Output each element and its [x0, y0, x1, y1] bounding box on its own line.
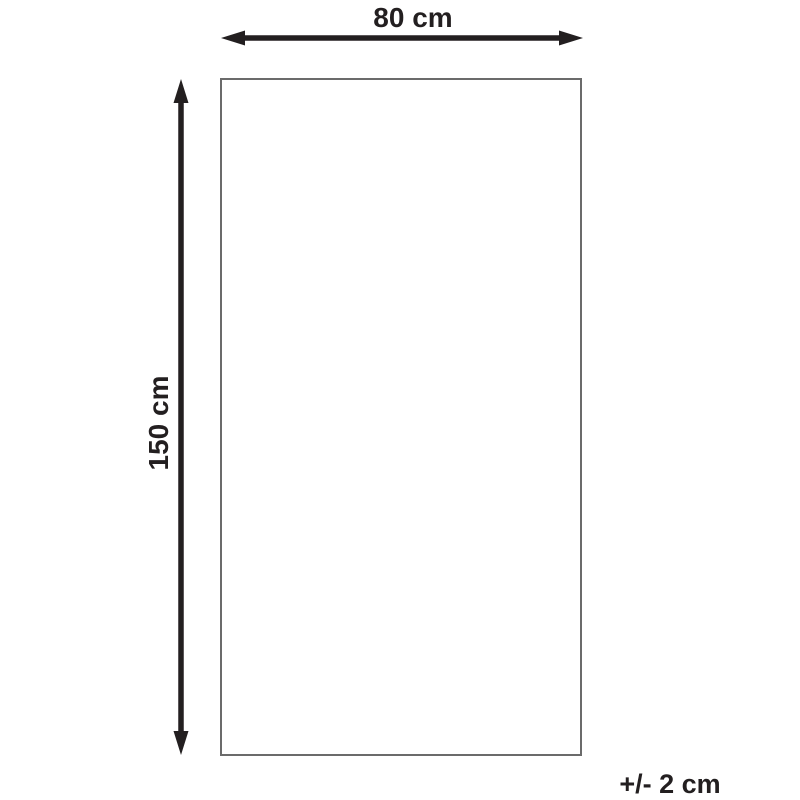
vertical-dimension-arrow-icon: [171, 79, 191, 755]
height-dimension-label: 150 cm: [144, 363, 174, 483]
product-outline-rectangle: [220, 78, 582, 756]
dimension-diagram: 80 cm 150 cm +/- 2 cm: [0, 0, 800, 800]
width-dimension-label: 80 cm: [232, 3, 594, 33]
tolerance-label: +/- 2 cm: [590, 769, 750, 799]
